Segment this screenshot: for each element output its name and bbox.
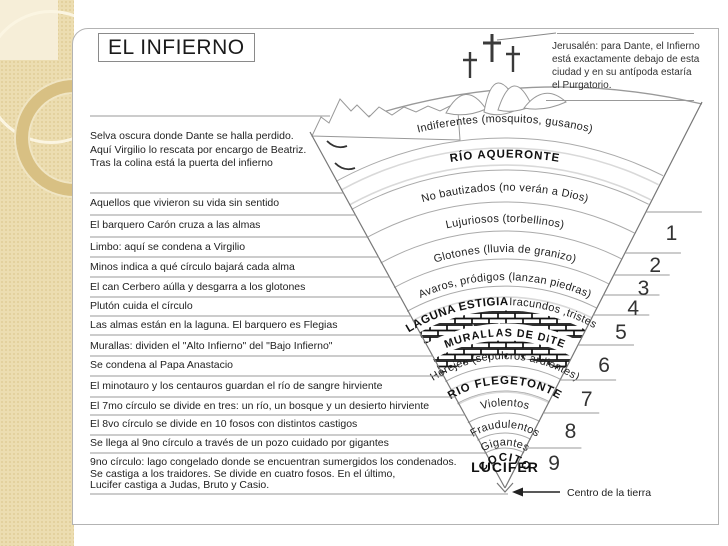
- intro-note: Selva oscura donde Dante se halla perdid…: [90, 130, 360, 171]
- note-item: Se llega al 9no círculo a través de un p…: [90, 438, 389, 450]
- note-item: El 7mo círculo se divide en tres: un río…: [90, 401, 429, 413]
- jerusalem-rule-top: [557, 33, 694, 34]
- note-item: Limbo: aquí se condena a Virgilio: [90, 242, 245, 254]
- note-item: Plutón cuida el círculo: [90, 301, 193, 313]
- text-layer: EL INFIERNO Jerusalén: para Dante, el In…: [0, 0, 728, 546]
- note-item: Murallas: dividen el "Alto Infierno" del…: [90, 341, 333, 353]
- note-item: 9no círculo: lago congelado donde se enc…: [90, 457, 457, 492]
- note-item: El can Cerbero aúlla y desgarra a los gl…: [90, 282, 305, 294]
- note-item: El minotauro y los centauros guardan el …: [90, 381, 382, 393]
- note-item: El 8vo círculo se divide en 10 fosos con…: [90, 419, 357, 431]
- note-item: Minos indica a qué círculo bajará cada a…: [90, 262, 295, 274]
- note-item: Las almas están en la laguna. El barquer…: [90, 320, 337, 332]
- jerusalem-note: Jerusalén: para Dante, el Infierno está …: [552, 40, 710, 92]
- jerusalem-rule-bottom: [546, 100, 694, 101]
- note-item: Se condena al Papa Anastacio: [90, 360, 233, 372]
- note-item: Aquellos que vivieron su vida sin sentid…: [90, 198, 279, 210]
- note-item: El barquero Carón cruza a las almas: [90, 220, 260, 232]
- page-title: EL INFIERNO: [98, 33, 255, 62]
